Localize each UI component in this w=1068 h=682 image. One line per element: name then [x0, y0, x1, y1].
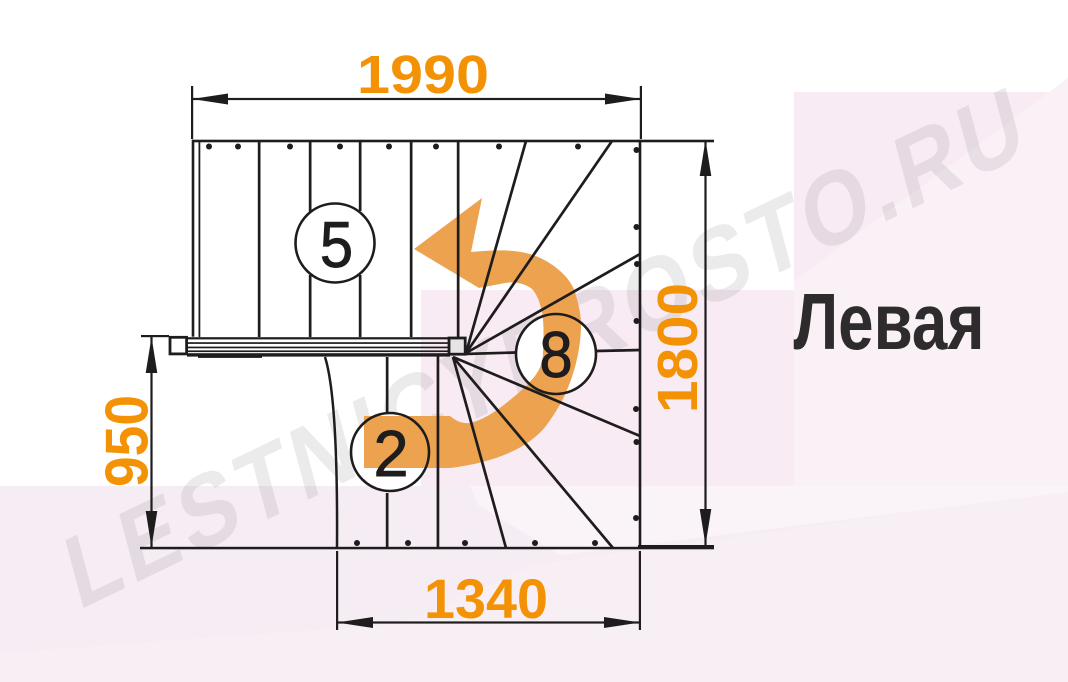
svg-text:950: 950 [94, 395, 161, 487]
svg-text:5: 5 [320, 209, 353, 282]
svg-text:1990: 1990 [357, 45, 489, 105]
svg-text:1340: 1340 [424, 567, 548, 630]
svg-text:Левая: Левая [794, 277, 985, 366]
svg-text:8: 8 [539, 319, 572, 392]
svg-text:1800: 1800 [646, 283, 710, 413]
svg-text:2: 2 [373, 417, 408, 490]
